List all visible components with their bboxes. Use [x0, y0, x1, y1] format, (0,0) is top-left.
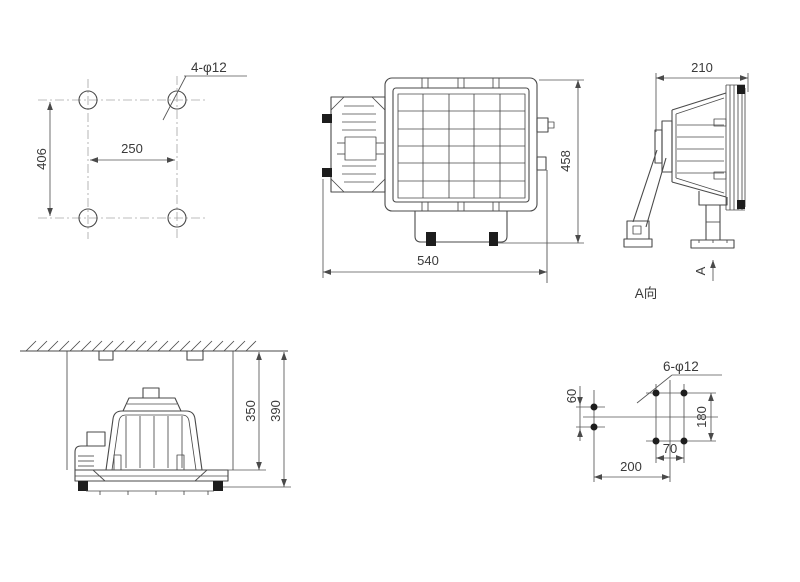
dim-458-label: 458: [558, 150, 573, 172]
dim-406-label: 406: [34, 148, 49, 170]
bolt-pattern-top-view: 406 250 4-φ12: [34, 60, 247, 239]
ballast-box: [322, 97, 385, 192]
ballast-tab-lower: [322, 168, 332, 177]
lamp-housing-side: [655, 93, 726, 197]
centerlines: [38, 76, 207, 239]
callout-4-holes-label: 4-φ12: [191, 60, 227, 75]
dim-540-label: 540: [417, 253, 439, 268]
view-direction-marker: A A向: [635, 260, 713, 301]
lamp-outer-frame: [385, 78, 537, 211]
dimension-406: 406: [34, 102, 50, 216]
guard-grid: [398, 94, 525, 198]
mounting-holes: [79, 91, 186, 227]
dimension-180: 180: [694, 393, 711, 441]
ballast-side-profile: [75, 432, 105, 470]
bolt-pattern-bottom-view: 60 180 70 200 6-φ12: [564, 359, 722, 482]
dome-cap: [123, 398, 181, 411]
view-direction-label: A向: [635, 286, 658, 301]
drawing-sheet: 406 250 4-φ12: [0, 0, 800, 582]
glass-clip-ticks: [100, 491, 208, 495]
dimension-200: 200: [594, 459, 670, 477]
callout-6-holes: 6-φ12: [637, 359, 722, 403]
face-clip-top: [737, 85, 745, 94]
dimension-60: 60: [564, 386, 580, 441]
dim-390-label: 390: [268, 400, 283, 422]
lamp-foot-left: [78, 481, 88, 491]
dimension-458: 458: [498, 80, 584, 243]
dimension-350: 350: [228, 352, 266, 470]
view-arrow-label: A: [693, 266, 708, 275]
ballast-tab-upper: [322, 114, 332, 123]
dim-250-label: 250: [121, 141, 143, 156]
dimension-70: 70: [656, 441, 684, 458]
hinge-latch: [537, 118, 554, 283]
ceiling-bracket-right: [187, 351, 203, 360]
lamp-foot-right: [213, 481, 223, 491]
lamp-face-stack: [726, 85, 745, 210]
dim-70-label: 70: [663, 441, 677, 456]
ceiling-bracket-left: [99, 351, 113, 360]
mounting-stirrup: [415, 211, 507, 246]
dim-210-label: 210: [691, 60, 713, 75]
dome-knob: [143, 388, 159, 398]
callout-6-holes-label: 6-φ12: [663, 359, 699, 374]
dimension-540: 540: [323, 179, 547, 278]
dim-60-label: 60: [564, 389, 579, 403]
installation-view: 350 390: [20, 341, 291, 495]
pivot-stem: [691, 191, 734, 248]
frame-clips: [422, 78, 499, 211]
side-view: 210: [624, 60, 748, 301]
lamp-inner-frame: [393, 88, 529, 202]
stirrup-foot-left: [426, 232, 436, 246]
callout-4-holes: 4-φ12: [163, 60, 247, 120]
dimension-250: 250: [90, 141, 175, 160]
dim-180-label: 180: [694, 406, 709, 428]
front-view: 540 458: [322, 78, 584, 283]
dim-350-label: 350: [243, 400, 258, 422]
mounted-lamp: [75, 388, 228, 495]
dim-200-label: 200: [620, 459, 642, 474]
stirrup-foot-right: [489, 232, 498, 246]
face-clip-bottom: [737, 200, 745, 209]
support-arm: [624, 150, 666, 247]
floodlight-technical-drawing: 406 250 4-φ12: [0, 0, 800, 582]
housing-ribs: [126, 416, 182, 468]
